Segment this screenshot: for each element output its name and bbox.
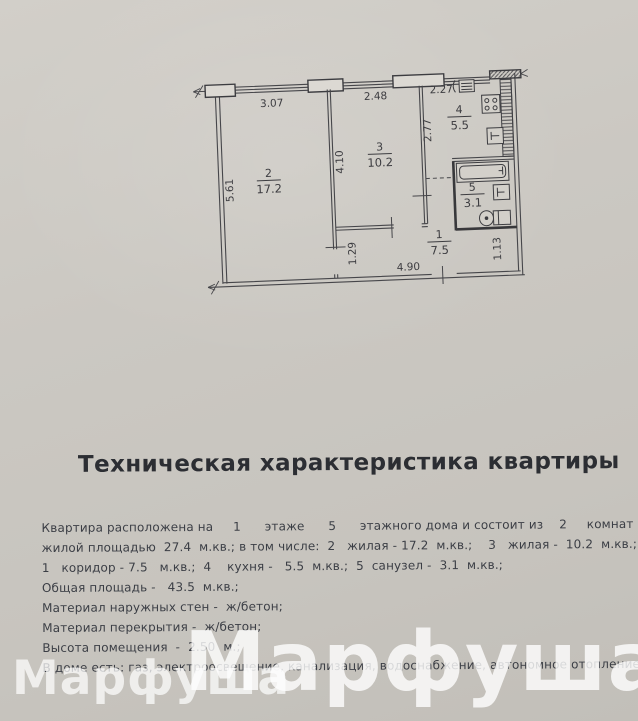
svg-text:5: 5 <box>468 181 476 194</box>
scanned-document-page: { "page": { "title": "Техническая характ… <box>0 0 638 721</box>
room-label-2: 2 17.2 <box>255 166 282 196</box>
corner-block <box>490 70 521 79</box>
dim-left-room2: 5.61 <box>224 179 237 203</box>
floor-plan: 3.07 2.48 2.27 5.61 4.10 2.77 1.29 4.90 … <box>186 56 545 310</box>
room-label-5: 5 3.1 <box>460 180 485 210</box>
page-title: Техническая характеристика квартиры <box>78 448 618 478</box>
room-label-4: 4 5.5 <box>447 103 472 133</box>
svg-text:7.5: 7.5 <box>430 243 449 258</box>
floor-plan-svg: 3.07 2.48 2.27 5.61 4.10 2.77 1.29 4.90 … <box>186 56 545 310</box>
bath-sink-icon <box>493 184 510 200</box>
toilet-icon <box>479 210 511 226</box>
svg-text:3.1: 3.1 <box>463 195 482 210</box>
dim-corridor-width: 4.90 <box>396 261 420 274</box>
dim-top-room3: 2.48 <box>364 90 388 103</box>
dim-room3-height: 4.10 <box>334 150 347 174</box>
room-labels: 2 17.2 3 10.2 4 5.5 5 3.1 1 7.5 <box>253 102 487 264</box>
dim-top-kitchen: 2.27 <box>429 83 453 96</box>
text-line-8: В доме есть: газ, электроосвещение, кана… <box>42 654 622 678</box>
bathtub-icon <box>456 161 509 182</box>
description-text: Квартира расположена на 1 этаже 5 этажно… <box>41 514 622 678</box>
dashed-opening <box>426 178 453 179</box>
window-room2-3 <box>308 79 343 92</box>
dim-kitchen-height: 2.77 <box>421 119 434 143</box>
svg-text:17.2: 17.2 <box>256 181 282 196</box>
svg-text:5.5: 5.5 <box>450 118 469 133</box>
stove-icon <box>482 95 501 114</box>
dim-top-room2: 3.07 <box>260 97 284 110</box>
kitchen-sink-icon <box>487 127 504 144</box>
room-label-3: 3 10.2 <box>367 140 394 170</box>
svg-text:4: 4 <box>455 103 463 116</box>
dim-corridor-left: 1.29 <box>346 242 359 266</box>
window-room2 <box>205 84 235 97</box>
svg-text:10.2: 10.2 <box>367 155 393 170</box>
text-line-2: жилой площадью 27.4 м.кв.; в том числе: … <box>42 534 622 558</box>
dim-corridor-right: 1.13 <box>491 237 504 261</box>
svg-text:2: 2 <box>265 167 273 180</box>
svg-text:3: 3 <box>376 140 384 153</box>
room-label-1: 1 7.5 <box>427 228 452 258</box>
svg-text:1: 1 <box>435 228 443 241</box>
